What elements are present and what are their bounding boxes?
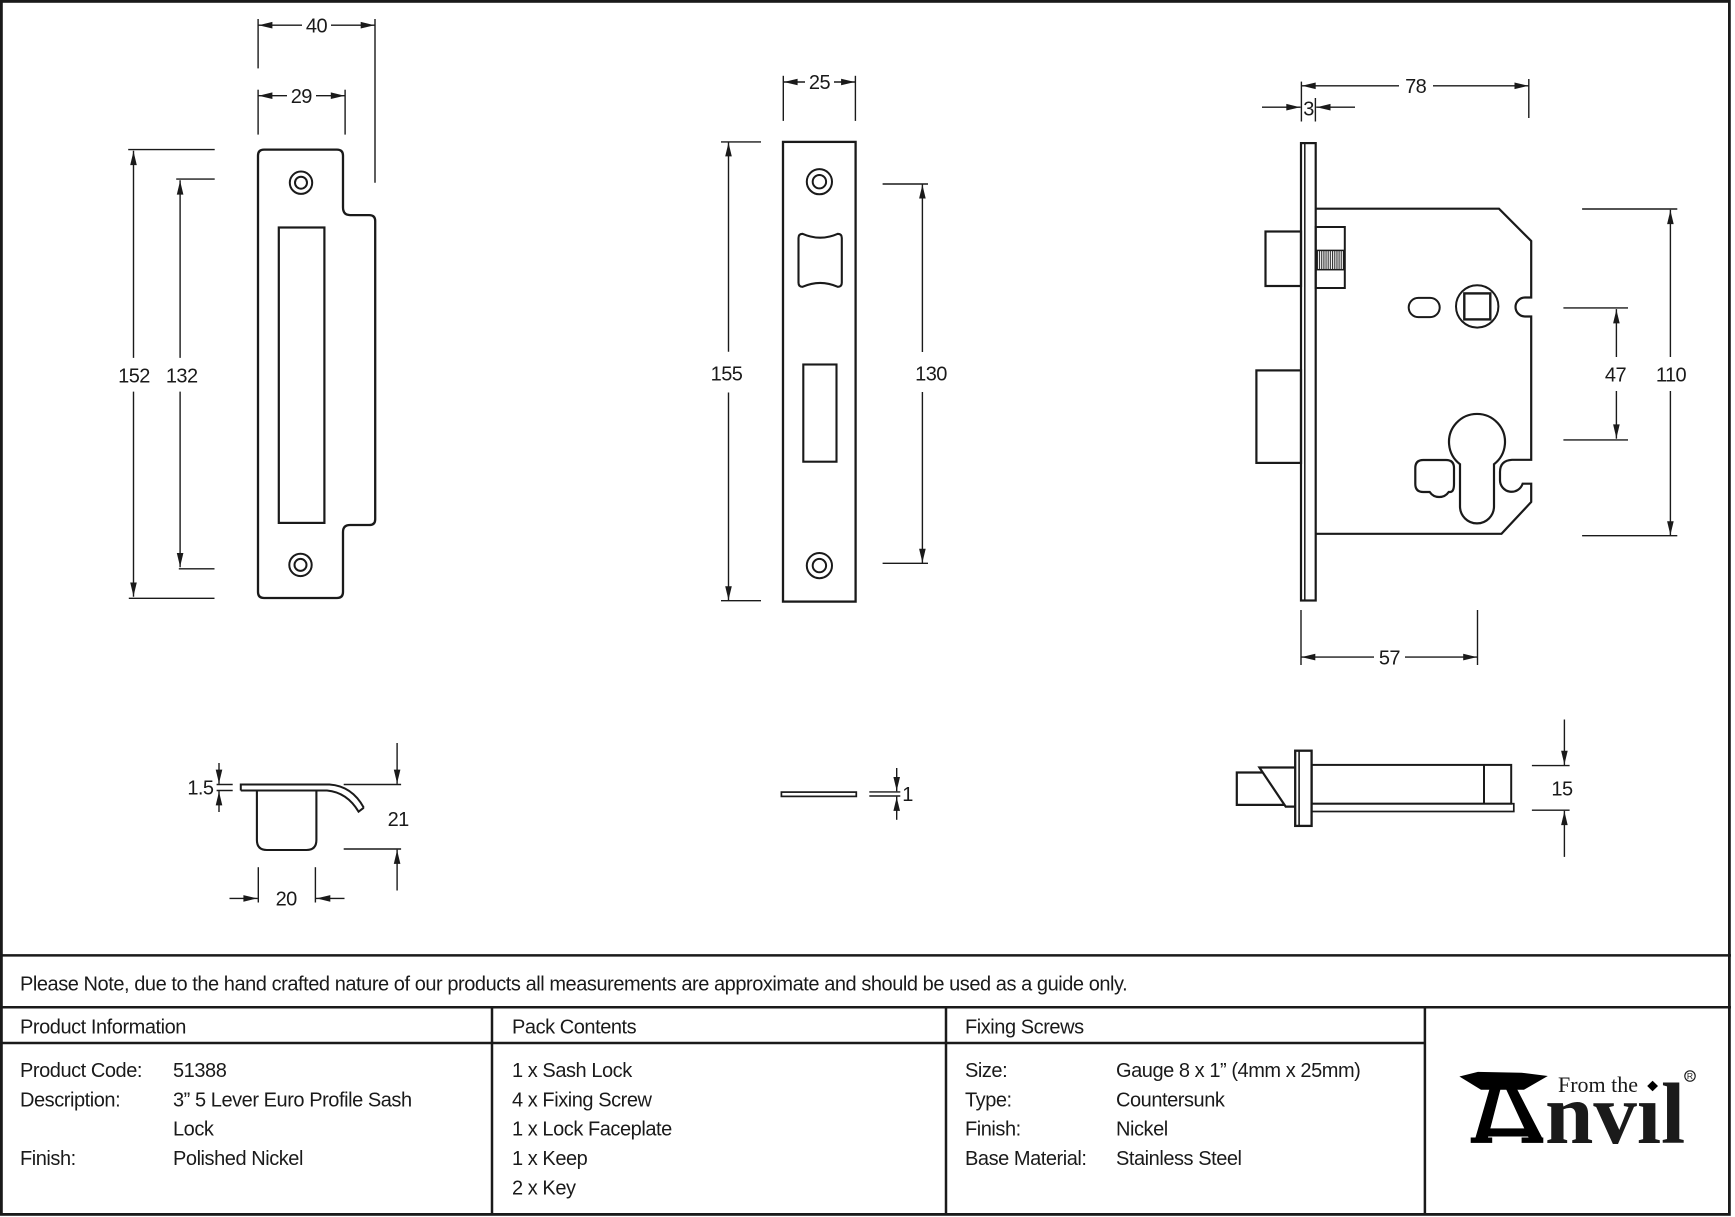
svg-text:130: 130 (915, 364, 947, 386)
svg-text:29: 29 (291, 86, 313, 108)
svg-text:Polished Nickel: Polished Nickel (173, 1148, 303, 1170)
svg-text:78: 78 (1405, 76, 1427, 98)
svg-text:155: 155 (711, 364, 743, 386)
svg-text:47: 47 (1605, 365, 1627, 387)
svg-text:Stainless Steel: Stainless Steel (1116, 1148, 1242, 1170)
svg-text:51388: 51388 (173, 1060, 227, 1082)
svg-text:4 x Fixing Screw: 4 x Fixing Screw (512, 1089, 653, 1111)
svg-text:57: 57 (1379, 647, 1401, 669)
svg-text:Please Note, due to the hand c: Please Note, due to the hand crafted nat… (20, 973, 1127, 995)
svg-text:Product Code:: Product Code: (20, 1060, 142, 1082)
svg-text:Size:: Size: (965, 1060, 1007, 1082)
svg-text:Finish:: Finish: (20, 1148, 76, 1170)
svg-text:Pack Contents: Pack Contents (512, 1017, 637, 1039)
svg-text:1 x Sash Lock: 1 x Sash Lock (512, 1060, 633, 1082)
svg-text:110: 110 (1656, 365, 1687, 387)
svg-text:Fixing Screws: Fixing Screws (965, 1017, 1084, 1039)
svg-text:25: 25 (809, 72, 831, 94)
svg-text:R: R (1687, 1071, 1693, 1081)
svg-text:Type:: Type: (965, 1089, 1012, 1111)
svg-text:Gauge 8 x 1” (4mm x 25mm): Gauge 8 x 1” (4mm x 25mm) (1116, 1060, 1360, 1082)
svg-text:20: 20 (276, 889, 298, 911)
svg-text:Description:: Description: (20, 1089, 120, 1111)
svg-text:Countersunk: Countersunk (1116, 1089, 1226, 1111)
svg-text:nvıl: nvıl (1545, 1065, 1685, 1162)
svg-text:132: 132 (166, 366, 198, 388)
svg-text:1.5: 1.5 (187, 778, 214, 800)
svg-text:15: 15 (1551, 778, 1573, 800)
svg-text:1 x Lock Faceplate: 1 x Lock Faceplate (512, 1119, 672, 1141)
svg-text:Lock: Lock (173, 1119, 215, 1141)
svg-text:3” 5 Lever Euro Profile Sash: 3” 5 Lever Euro Profile Sash (173, 1089, 412, 1111)
svg-text:Base Material:: Base Material: (965, 1148, 1087, 1170)
svg-text:3: 3 (1303, 98, 1314, 120)
svg-text:1: 1 (902, 784, 913, 806)
svg-text:Product Information: Product Information (20, 1017, 186, 1039)
svg-text:1 x Keep: 1 x Keep (512, 1148, 588, 1170)
svg-text:Finish:: Finish: (965, 1119, 1021, 1141)
svg-text:21: 21 (388, 809, 410, 831)
svg-text:152: 152 (118, 366, 150, 388)
svg-text:40: 40 (306, 15, 328, 37)
svg-text:Nickel: Nickel (1116, 1119, 1168, 1141)
svg-text:2 x Key: 2 x Key (512, 1178, 576, 1200)
